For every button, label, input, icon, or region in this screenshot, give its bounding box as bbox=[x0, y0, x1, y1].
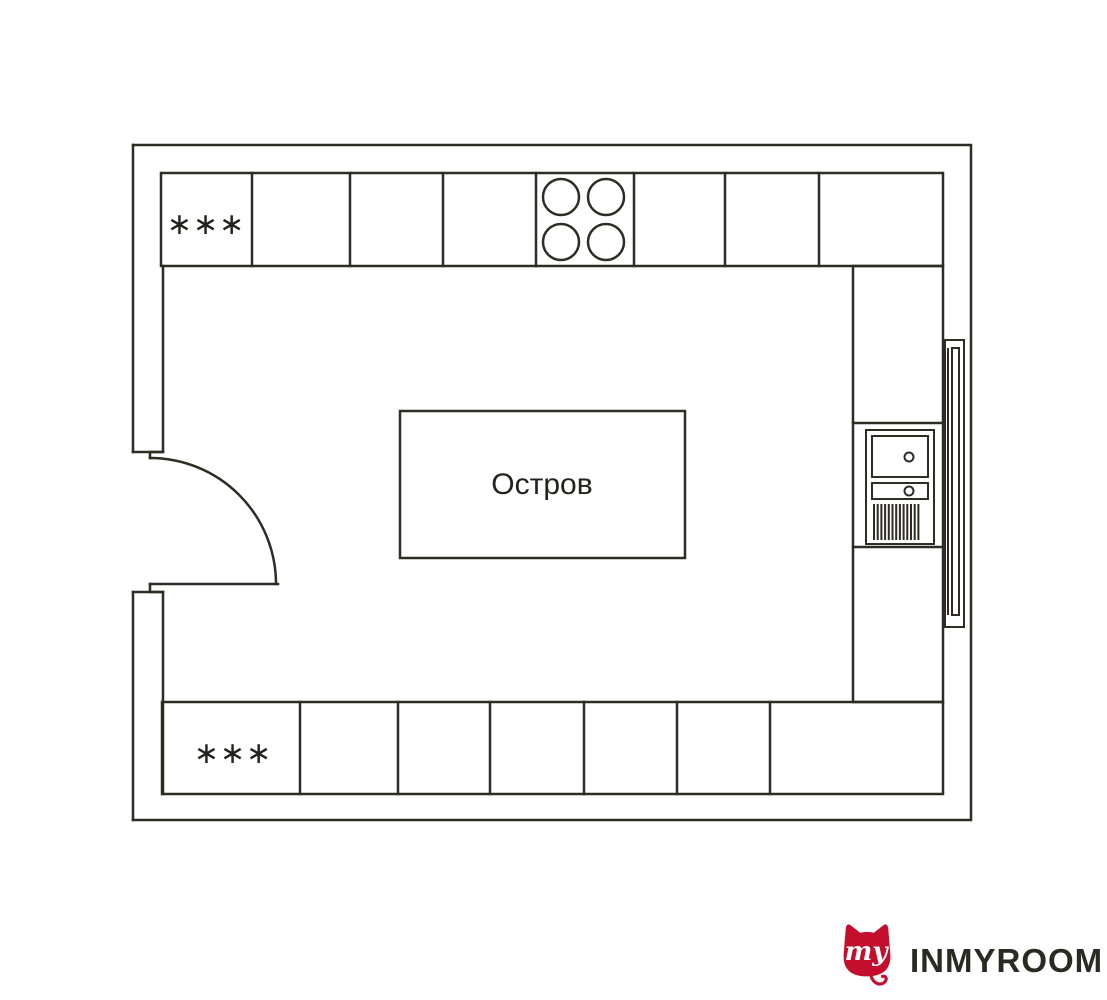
logo-monogram: my bbox=[845, 936, 890, 967]
island: Остров bbox=[400, 411, 685, 558]
top-cabinet-asterisk-marker: ∗∗∗ bbox=[167, 207, 245, 242]
door-opening bbox=[133, 266, 278, 794]
sink-faucet bbox=[905, 487, 914, 496]
logo-cat-icon: my bbox=[836, 921, 898, 993]
top-counter-outline bbox=[161, 173, 943, 266]
burner-top-left bbox=[543, 179, 579, 215]
burner-bottom-right bbox=[588, 224, 624, 260]
burner-top-right bbox=[588, 179, 624, 215]
sink-drain bbox=[905, 453, 914, 462]
sink-faucet-ledge bbox=[872, 483, 928, 499]
burner-bottom-left bbox=[543, 224, 579, 260]
sink-drainboard-hatch bbox=[874, 504, 918, 540]
sink-basin bbox=[872, 436, 928, 477]
top-counter-run: ∗∗∗ bbox=[161, 173, 943, 266]
window-glazing bbox=[952, 348, 959, 615]
bottom-cabinet-asterisk-marker: ∗∗∗ bbox=[194, 736, 272, 771]
kitchen-floor-plan-page: ∗∗∗ ∗∗∗ bbox=[0, 0, 1107, 1000]
bottom-counter-dividers bbox=[300, 702, 770, 794]
bottom-counter-outline bbox=[162, 702, 943, 794]
bottom-counter-run: ∗∗∗ bbox=[162, 702, 943, 794]
inmyroom-logo: my INMYROOM bbox=[836, 921, 1103, 993]
window bbox=[945, 340, 964, 627]
island-label: Остров bbox=[491, 468, 592, 501]
cat-tail-flourish bbox=[871, 975, 886, 984]
logo-wordmark: INMYROOM bbox=[910, 938, 1103, 977]
door-jamb-lower bbox=[133, 592, 163, 794]
door-swing-arc bbox=[150, 458, 276, 584]
top-counter-dividers bbox=[252, 173, 819, 266]
cooktop-burners-icon bbox=[543, 179, 624, 260]
right-counter-run bbox=[853, 266, 943, 702]
door-jamb-upper bbox=[133, 266, 163, 452]
sink-icon bbox=[866, 430, 934, 544]
kitchen-floor-plan: ∗∗∗ ∗∗∗ bbox=[0, 0, 1107, 1000]
